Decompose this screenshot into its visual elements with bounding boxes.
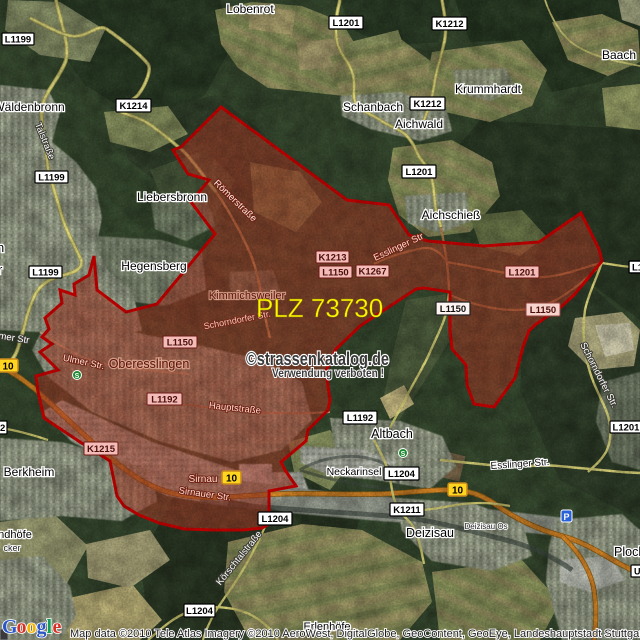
svg-text:L11: L11 [632,263,640,274]
svg-text:Oberesslingen: Oberesslingen [109,357,190,371]
svg-text:K1212: K1212 [414,99,442,110]
svg-text:L1201: L1201 [509,268,537,279]
svg-text:Verwendung verboten !: Verwendung verboten ! [272,368,384,380]
svg-text:K1213: K1213 [319,253,347,264]
svg-text:P: P [563,512,569,522]
svg-text:L1150: L1150 [440,304,466,315]
svg-text:g: g [37,616,47,638]
svg-text:U: U [634,567,640,577]
svg-text:K1214: K1214 [120,101,149,112]
svg-text:Schanbach: Schanbach [343,100,403,114]
svg-text:Deizisau: Deizisau [406,526,454,540]
svg-text:©strassenkatalog.de: ©strassenkatalog.de [246,349,389,369]
svg-text:L1199: L1199 [38,173,64,184]
svg-text:Aichschieß: Aichschieß [422,208,481,222]
svg-text:Lobenrot: Lobenrot [226,2,274,16]
svg-text:L1150: L1150 [322,268,348,279]
svg-text:10: 10 [226,474,238,485]
svg-text:K1212: K1212 [436,19,464,30]
svg-text:ndhöfe: ndhöfe [0,529,32,541]
svg-text:Map data ©2010 Tele Atlas Ima: Map data ©2010 Tele Atlas Imagery ©2010 … [70,628,640,640]
svg-text:Altbach: Altbach [371,427,413,441]
svg-text:S: S [75,373,80,380]
svg-text:o: o [17,616,27,638]
svg-text:Liebersbronn: Liebersbronn [137,190,207,204]
svg-text:Berkheim: Berkheim [4,465,55,479]
svg-text:2: 2 [0,423,5,434]
svg-text:L1201: L1201 [406,167,434,178]
svg-text:L1150: L1150 [530,305,556,316]
svg-text:PLZ 73730: PLZ 73730 [256,293,383,323]
svg-text:n: n [0,240,4,255]
svg-text:K1211: K1211 [393,505,421,516]
svg-text:K1267: K1267 [359,267,387,278]
svg-text:L1199: L1199 [5,35,31,46]
svg-text:Krummhardt: Krummhardt [455,82,522,96]
svg-text:L1201: L1201 [333,18,361,29]
svg-text:10: 10 [2,362,14,373]
svg-text:10: 10 [452,486,464,497]
svg-text:K1215: K1215 [87,444,116,455]
svg-text:Baach: Baach [602,48,636,62]
svg-text:L1199: L1199 [32,268,58,279]
svg-text:Neckarinsel: Neckarinsel [327,466,382,478]
svg-text:L1201: L1201 [613,423,640,434]
svg-text:Wäldenbronn: Wäldenbronn [0,100,65,114]
svg-text:L1150: L1150 [167,338,193,349]
svg-text:Deizisau Os: Deizisau Os [464,522,507,531]
svg-text:L1204: L1204 [262,514,290,525]
svg-text:L1192: L1192 [151,395,177,406]
svg-text:Plochingen: Plochingen [614,545,640,559]
svg-text:Hegensberg: Hegensberg [121,259,186,273]
svg-text:o: o [27,616,37,638]
svg-text:e: e [53,616,62,638]
svg-text:L1204: L1204 [388,469,416,480]
svg-text:L1192: L1192 [347,413,373,424]
svg-text:cker: cker [3,543,20,553]
svg-text:Aichwald: Aichwald [395,117,443,131]
svg-text:S: S [401,451,406,458]
svg-text:Sirnau: Sirnau [189,474,218,485]
svg-text:L1204: L1204 [186,606,214,617]
